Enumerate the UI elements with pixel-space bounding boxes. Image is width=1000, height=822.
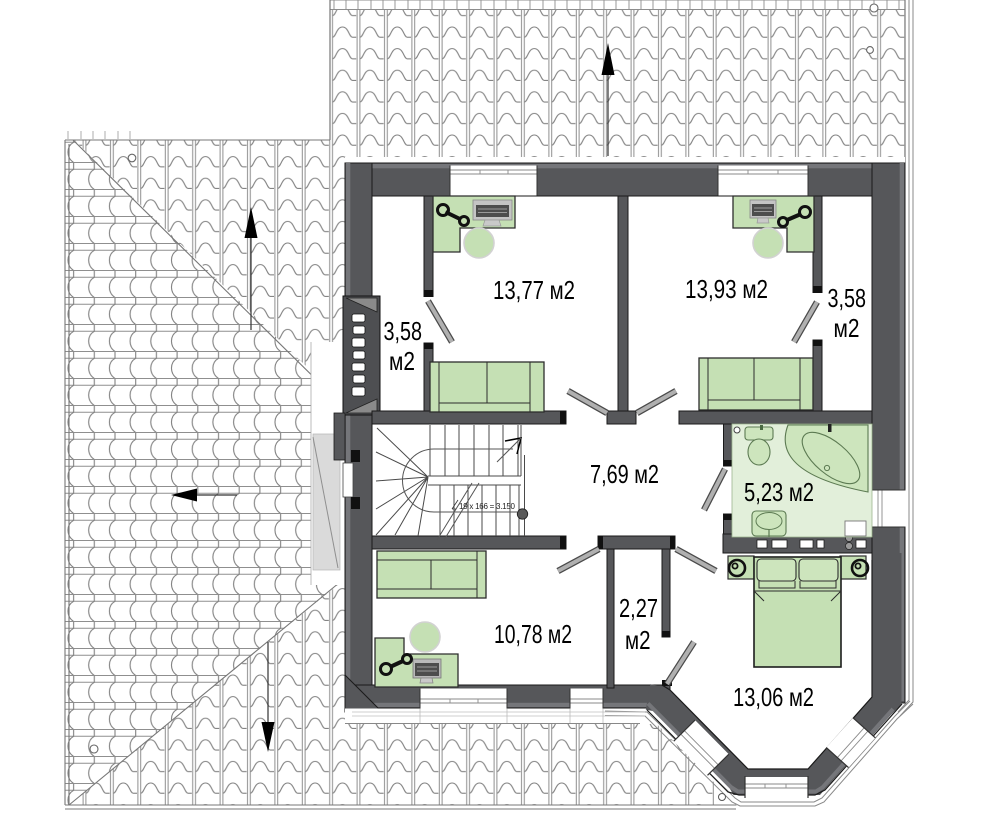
svg-text:19 x 166 = 3.150: 19 x 166 = 3.150 xyxy=(459,502,516,511)
svg-text:13,93 м2: 13,93 м2 xyxy=(685,274,768,304)
svg-text:7,69 м2: 7,69 м2 xyxy=(590,459,659,489)
svg-text:3,58: 3,58 xyxy=(828,283,867,313)
svg-text:м2: м2 xyxy=(625,625,651,655)
svg-text:м2: м2 xyxy=(834,313,860,343)
svg-text:5,23 м2: 5,23 м2 xyxy=(744,477,814,507)
svg-text:2,27: 2,27 xyxy=(619,593,658,623)
svg-text:10,78 м2: 10,78 м2 xyxy=(494,619,572,649)
svg-text:3,58: 3,58 xyxy=(384,316,423,346)
svg-text:м2: м2 xyxy=(389,346,415,376)
svg-text:13,06 м2: 13,06 м2 xyxy=(733,682,814,712)
svg-text:13,77 м2: 13,77 м2 xyxy=(493,275,575,305)
